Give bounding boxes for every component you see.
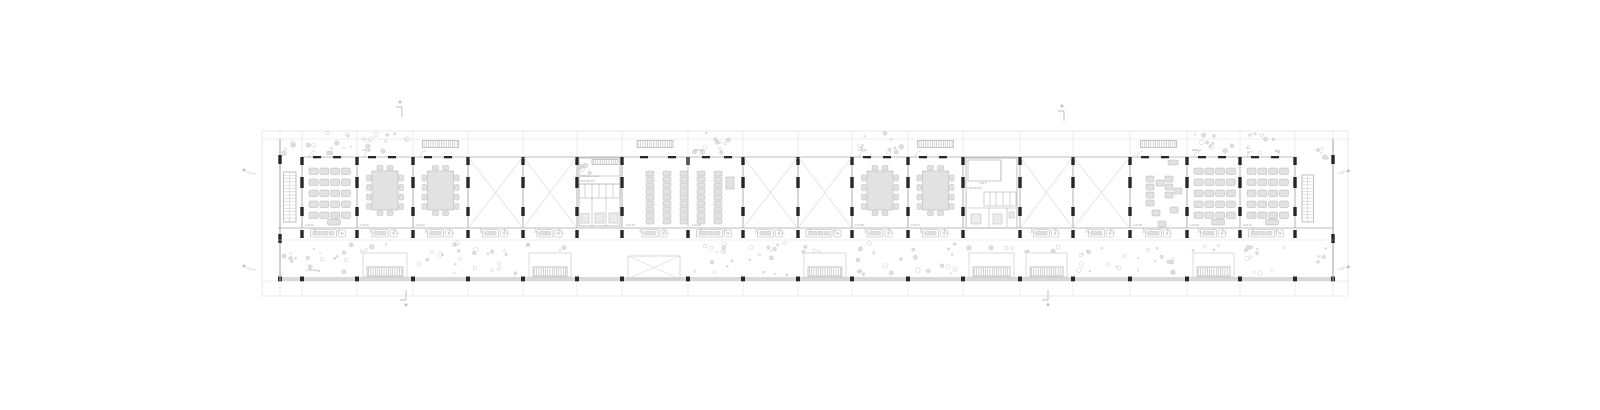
bay-void-5 (524, 158, 576, 277)
bay-stair-19 (1302, 175, 1314, 222)
svg-text:4.02.09: 4.02.09 (1190, 224, 1199, 227)
svg-text:4.04 WC D/H: 4.04 WC D/H (580, 180, 595, 183)
bay-void-14 (1021, 158, 1072, 277)
svg-text:4.08.03: 4.08.03 (858, 149, 867, 152)
svg-text:4.02.10: 4.02.10 (1243, 224, 1252, 227)
svg-text:4.02.08: 4.02.08 (1133, 224, 1142, 227)
paving (262, 131, 1348, 296)
section-marker-bottom-2 (1042, 290, 1049, 306)
section-marker-left-2 (243, 265, 256, 270)
bay-seminar-3 (417, 141, 461, 274)
section-marker-top-2 (1058, 105, 1064, 121)
svg-text:4.02.07: 4.02.07 (911, 224, 920, 227)
section-marker-top-1 (396, 101, 402, 117)
bay-void-10 (799, 158, 851, 277)
svg-text:4.02.01: 4.02.01 (305, 224, 314, 227)
svg-text:4.05 R: 4.05 R (979, 182, 987, 185)
svg-text:4.08.04: 4.08.04 (1192, 149, 1201, 152)
bay-seminar-11 (856, 131, 904, 275)
bay-seminar-12 (912, 141, 958, 275)
bay-classroom-1 (306, 132, 353, 274)
bay-void-15 (1074, 158, 1129, 272)
section-marker-bottom-1 (400, 290, 407, 306)
bay-void-4 (469, 158, 522, 275)
bay-core1-6 (579, 158, 620, 226)
svg-text:4.02.06: 4.02.06 (855, 224, 864, 227)
svg-text:4.08.02: 4.08.02 (694, 149, 703, 152)
bay-classroom-18 (1244, 133, 1288, 276)
svg-text:4.02.04: 4.02.04 (626, 224, 635, 227)
bay-core2-13 (966, 158, 1017, 277)
svg-text:4.02.03: 4.02.03 (416, 224, 425, 227)
bay-stair-0 (284, 172, 297, 222)
section-marker-left-1 (243, 169, 256, 174)
bay-lectureL-7 (628, 141, 734, 280)
bay-group-16 (1137, 141, 1182, 275)
svg-text:4.03 Nebenraum: 4.03 Nebenraum (580, 175, 600, 178)
svg-text:4.06 WC D/H: 4.06 WC D/H (967, 187, 982, 190)
floor-plan-svg: 4.02.014.02.024.02.034.02.044.02.054.02.… (0, 0, 1600, 410)
floor-plan: 4.02.014.02.024.02.034.02.044.02.054.02.… (0, 0, 1600, 410)
svg-text:4.02.02: 4.02.02 (360, 224, 369, 227)
bay-seminar-2 (360, 132, 409, 277)
bay-void-9 (744, 158, 797, 276)
svg-text:4.08.01: 4.08.01 (362, 149, 371, 152)
svg-text:1.Terrasse: 1.Terrasse (306, 269, 318, 272)
bay-classroom-17 (1192, 133, 1235, 277)
svg-text:4.02.05: 4.02.05 (692, 224, 701, 227)
